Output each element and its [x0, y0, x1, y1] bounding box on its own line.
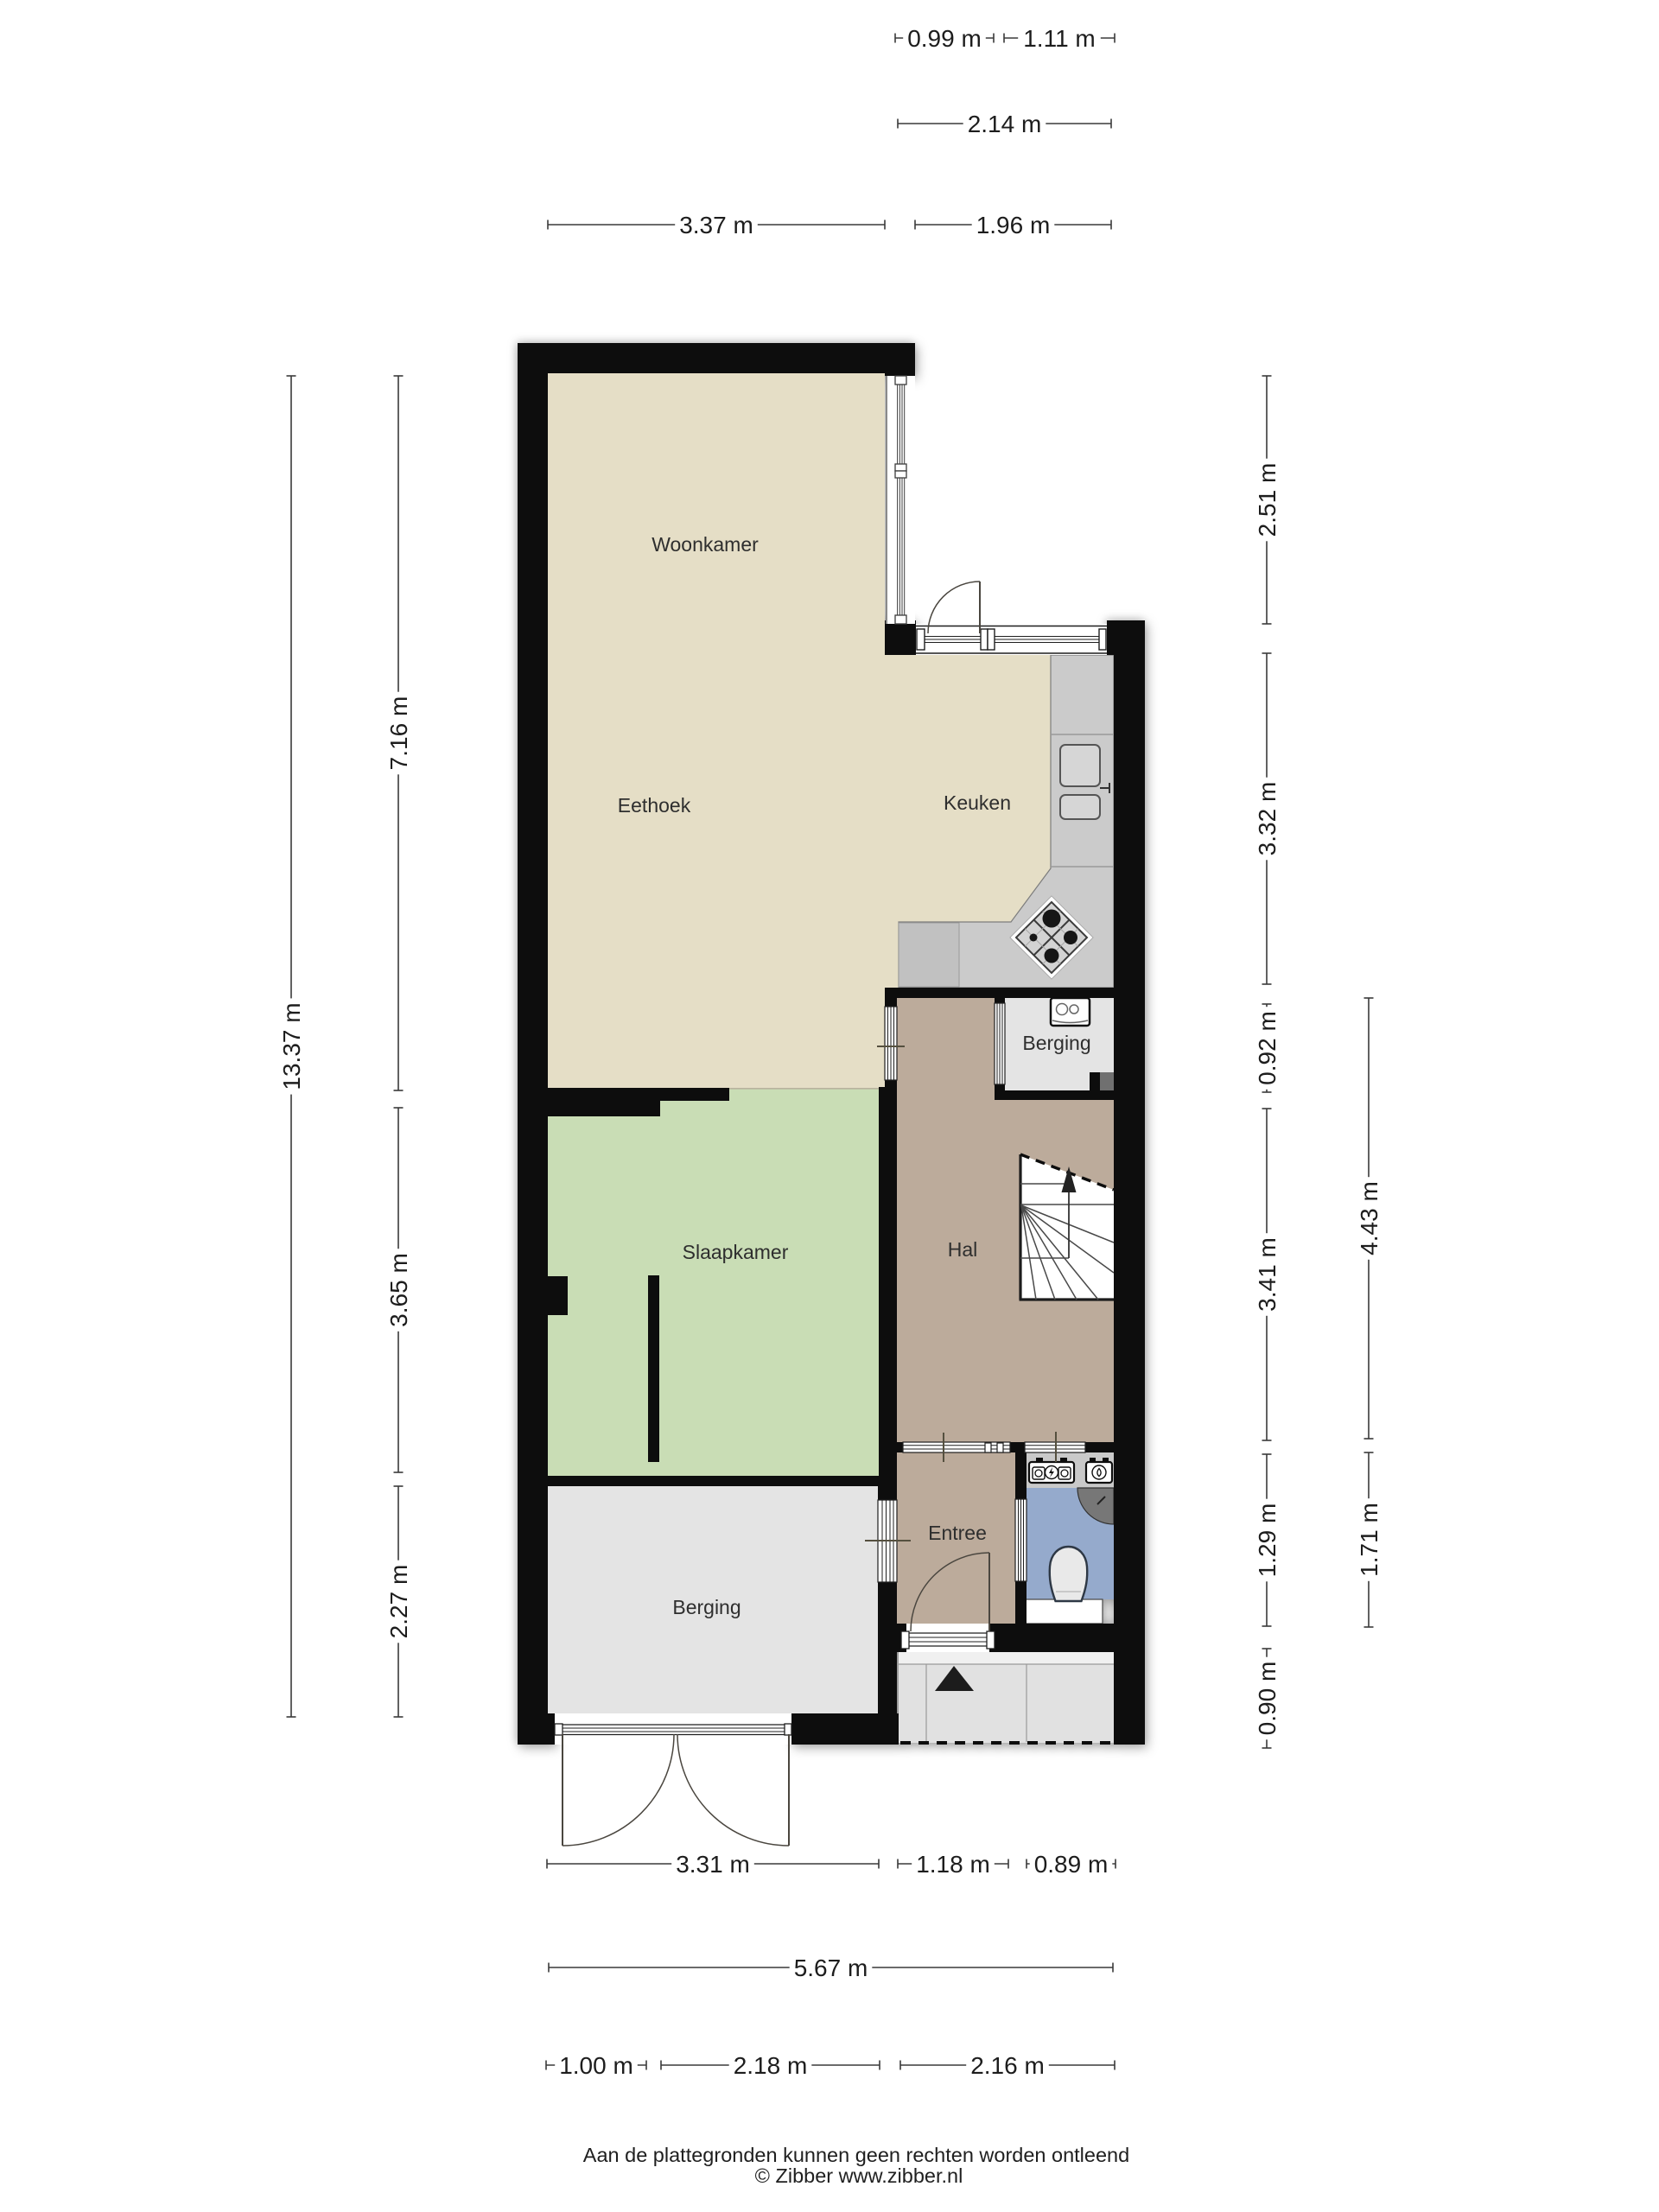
svg-text:Woonkamer: Woonkamer [652, 533, 759, 556]
svg-text:0.92 m: 0.92 m [1254, 1011, 1281, 1085]
svg-text:5.67 m: 5.67 m [794, 1955, 868, 1981]
svg-text:3.65 m: 3.65 m [385, 1253, 412, 1327]
svg-text:Aan de plattegronden kunnen ge: Aan de plattegronden kunnen geen rechten… [583, 2144, 1129, 2166]
svg-text:1.71 m: 1.71 m [1356, 1503, 1382, 1577]
svg-text:© Zibber www.zibber.nl: © Zibber www.zibber.nl [755, 2164, 963, 2187]
svg-text:1.96 m: 1.96 m [976, 212, 1051, 238]
svg-text:Eethoek: Eethoek [618, 794, 691, 817]
svg-text:0.90 m: 0.90 m [1254, 1662, 1281, 1736]
svg-text:2.27 m: 2.27 m [385, 1565, 412, 1639]
svg-text:Berging: Berging [1022, 1032, 1090, 1054]
svg-text:2.51 m: 2.51 m [1254, 463, 1281, 537]
svg-text:1.00 m: 1.00 m [559, 2052, 633, 2079]
svg-text:1.11 m: 1.11 m [1023, 25, 1096, 52]
svg-text:Entree: Entree [928, 1522, 987, 1544]
svg-text:1.18 m: 1.18 m [916, 1851, 990, 1878]
svg-text:3.37 m: 3.37 m [679, 212, 753, 238]
svg-text:7.16 m: 7.16 m [385, 696, 412, 771]
svg-text:Slaapkamer: Slaapkamer [683, 1241, 789, 1263]
svg-text:Berging: Berging [672, 1596, 741, 1618]
svg-text:3.32 m: 3.32 m [1254, 782, 1281, 856]
svg-text:1.29 m: 1.29 m [1254, 1503, 1281, 1578]
svg-text:Keuken: Keuken [944, 791, 1011, 814]
svg-text:Hal: Hal [948, 1238, 978, 1261]
svg-text:13.37 m: 13.37 m [278, 1002, 305, 1090]
svg-text:3.31 m: 3.31 m [676, 1851, 750, 1878]
svg-text:2.16 m: 2.16 m [970, 2052, 1045, 2079]
svg-text:3.41 m: 3.41 m [1254, 1237, 1281, 1312]
svg-text:4.43 m: 4.43 m [1356, 1181, 1382, 1255]
svg-text:0.99 m: 0.99 m [907, 25, 982, 52]
svg-text:0.89 m: 0.89 m [1034, 1851, 1109, 1878]
svg-text:2.14 m: 2.14 m [968, 111, 1042, 137]
svg-text:2.18 m: 2.18 m [734, 2052, 808, 2079]
